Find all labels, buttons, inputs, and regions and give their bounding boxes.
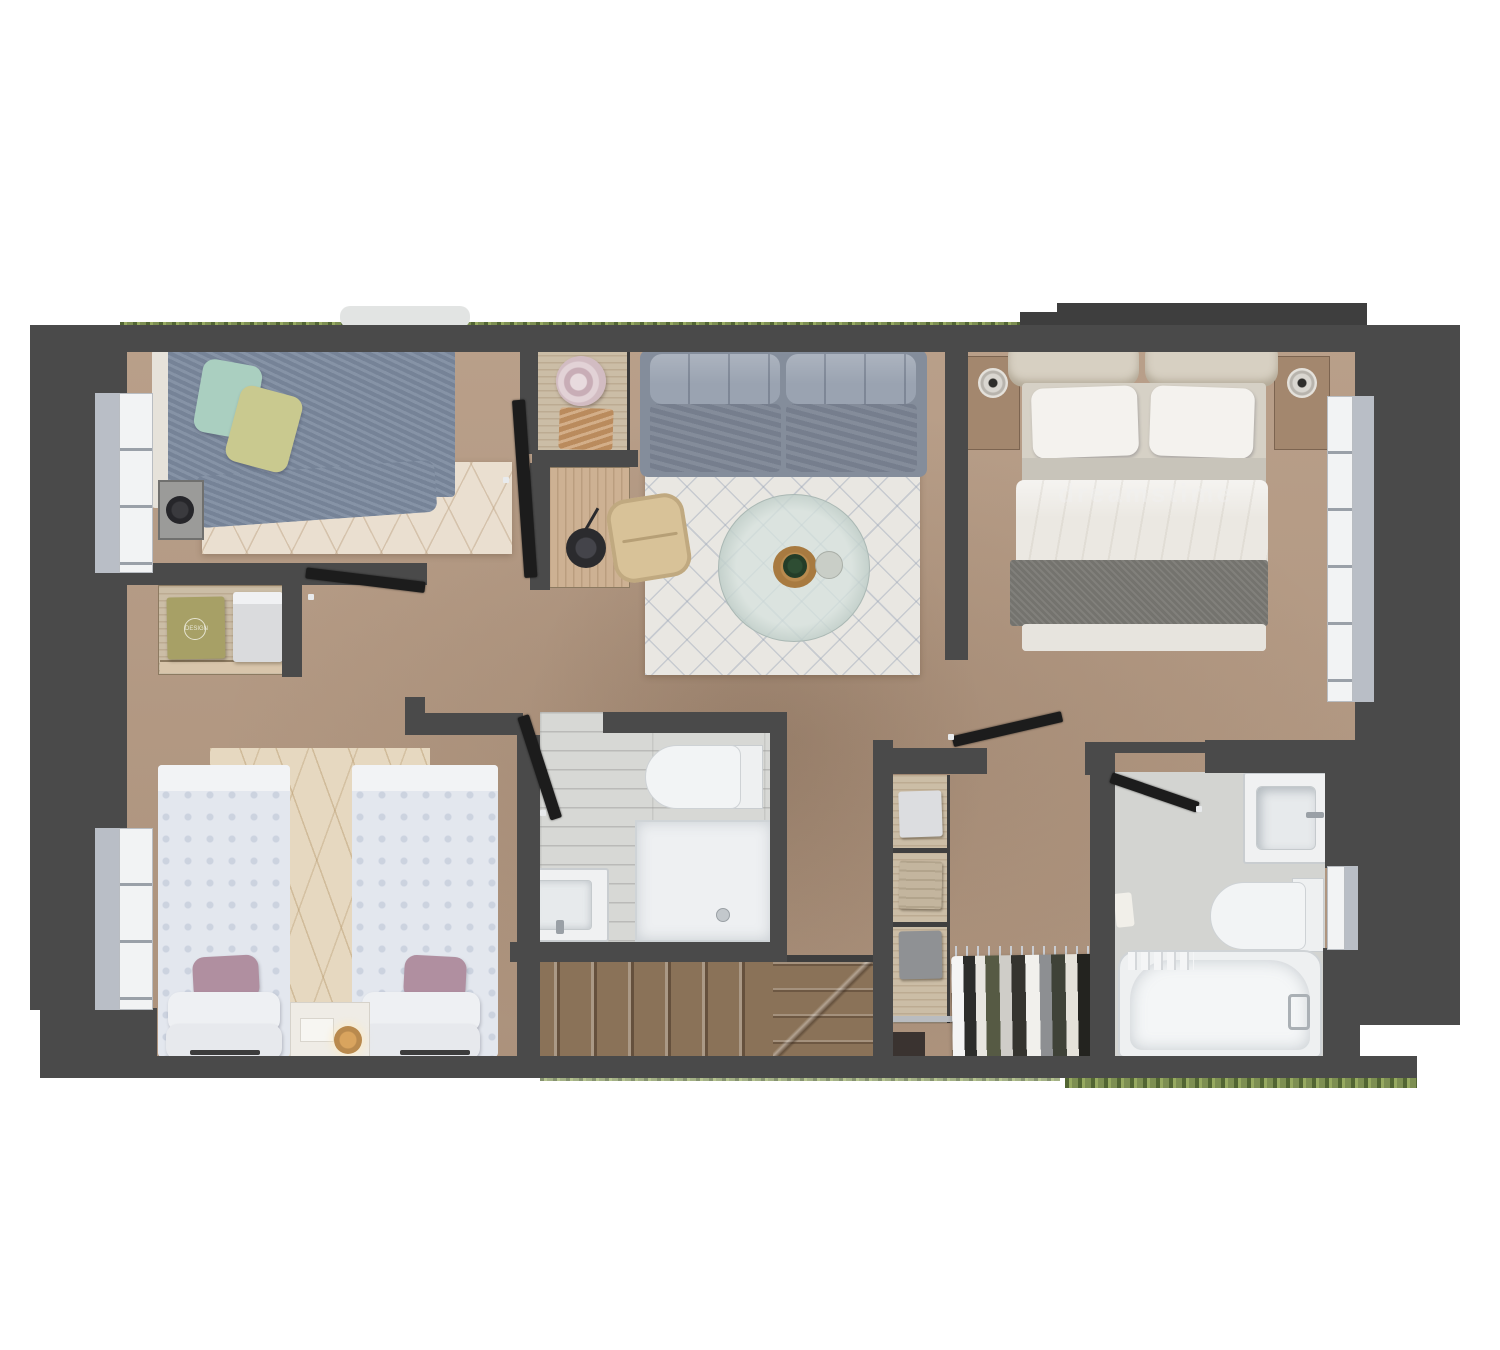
bath1-toilet-bowl — [645, 745, 741, 809]
sofa-seat-cushion-left — [650, 404, 781, 472]
closet-folded-gray — [899, 931, 943, 980]
twin-right-foot-rail — [400, 1050, 470, 1055]
door-bath1-handle — [540, 810, 546, 816]
closet-floor-box — [893, 1032, 925, 1058]
wall-bath1-east — [770, 712, 787, 962]
twin-nightstand-book — [300, 1018, 334, 1042]
master-pillow-left — [1031, 385, 1139, 459]
floor-plan-canvas: DESIGN dreamstime — [0, 0, 1500, 1350]
bath2-toilet-bowl — [1210, 882, 1306, 950]
wall-bedroom2-east — [517, 735, 540, 1058]
wall-bath2-west — [1090, 772, 1115, 1058]
bath2-faucet — [1306, 812, 1324, 818]
twin-bed-right-topfold — [352, 765, 498, 791]
master-headboard-right — [1145, 347, 1278, 387]
tray-cup — [815, 551, 843, 579]
wall-bath2-east-upper — [1325, 772, 1357, 868]
stairs-straight-flight — [517, 962, 773, 1058]
wall-bath2-lintel — [1113, 742, 1207, 753]
window-bath2-frame — [1327, 866, 1345, 950]
wall-closet-west — [873, 740, 893, 1058]
closet-folded-white — [898, 790, 943, 837]
window-bedroom1-frame — [119, 393, 153, 573]
bath1-faucet — [556, 920, 564, 934]
bath1-shower-drain — [716, 908, 730, 922]
twin-left-foot-rail — [190, 1050, 260, 1055]
bath2-bathtub-inner — [1130, 960, 1310, 1050]
watermark-text: dreamstime — [1058, 478, 1288, 509]
closet-shelf-divider-1 — [893, 848, 950, 853]
bath2-bottles — [1128, 952, 1194, 970]
desk-lamp — [566, 528, 606, 568]
door-bath2-handle — [1196, 806, 1202, 812]
master-speaker-right — [1287, 368, 1317, 398]
master-headboard-left — [1008, 347, 1139, 387]
closet-clothes-on-hangers — [951, 954, 1096, 1059]
stairs-winder-steps — [773, 962, 873, 1058]
sofa-back-cushion-left — [650, 354, 780, 404]
door-bedroom1-handle — [503, 477, 509, 483]
twin-nightstand-lamp — [334, 1026, 362, 1054]
closet-folded-beige — [899, 861, 943, 910]
bed1-table-lamp — [166, 496, 194, 524]
bath2-tub-faucet — [1288, 994, 1310, 1030]
window-master-frame — [1327, 396, 1353, 702]
wall-exterior-south — [40, 1056, 1417, 1078]
folded-cloth-tan — [558, 407, 613, 451]
window-bedroom1-glass — [95, 393, 119, 573]
bath2-sink-basin — [1256, 786, 1316, 850]
sofa-seat-cushion-right — [786, 404, 917, 472]
bath1-shower-tray — [635, 820, 773, 942]
wall-bath1-north — [603, 712, 787, 733]
wall-closet-north — [873, 748, 987, 774]
door-bedroom2-handle — [308, 594, 314, 600]
window-bedroom2-glass — [95, 828, 119, 1010]
hat — [556, 356, 606, 406]
wall-bedroom2-north-stub — [405, 697, 425, 735]
sofa-back-cushion-right — [786, 354, 916, 404]
twin-bed-left-topfold — [158, 765, 290, 791]
master-blanket-band — [1010, 560, 1268, 626]
tray-plant — [783, 554, 807, 578]
master-speaker-left — [978, 368, 1008, 398]
master-foot-sheet — [1022, 624, 1266, 651]
bath2-towel — [1113, 892, 1134, 928]
shirt-print-label: DESIGN — [184, 618, 206, 640]
window-master-glass — [1353, 396, 1374, 702]
window-bedroom2-frame — [119, 828, 153, 1010]
wall-stub-dresser — [282, 585, 302, 677]
folded-shirt-white — [233, 592, 283, 662]
window-bath2-glass — [1345, 866, 1358, 950]
wall-bath1-south — [510, 942, 787, 962]
wall-master-south — [1205, 740, 1357, 773]
door-closet-handle — [948, 734, 954, 740]
wall-master-west-stub — [945, 348, 968, 660]
wall-exterior-north — [30, 325, 1460, 352]
closet-shelf-divider-2 — [893, 922, 950, 927]
wall-closet-northeast-block — [1085, 742, 1115, 775]
master-pillow-right — [1149, 385, 1255, 459]
